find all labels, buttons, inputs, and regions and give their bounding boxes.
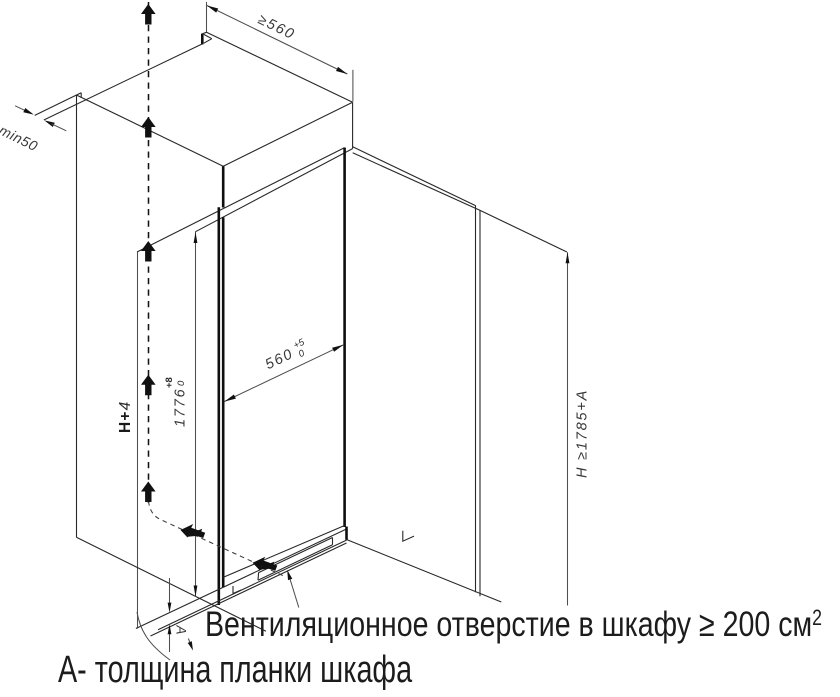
- svg-text:1776: 1776: [173, 388, 189, 427]
- svg-text:0: 0: [176, 380, 187, 386]
- svg-text:≥560: ≥560: [255, 12, 297, 44]
- svg-text:H+4: H+4: [117, 401, 134, 433]
- svg-text:А- толщина планки шкафа: А- толщина планки шкафа: [58, 648, 412, 691]
- svg-text:560: 560: [263, 346, 297, 373]
- svg-text:+8: +8: [164, 377, 175, 388]
- svg-text:min50: min50: [0, 122, 41, 154]
- svg-text:H ≥1785+A: H ≥1785+A: [575, 389, 591, 478]
- svg-text:Вентиляционное отверстие в шка: Вентиляционное отверстие в шкафу ≥ 200 с…: [205, 604, 822, 644]
- svg-text:0: 0: [297, 348, 307, 361]
- svg-text:А: А: [174, 625, 189, 635]
